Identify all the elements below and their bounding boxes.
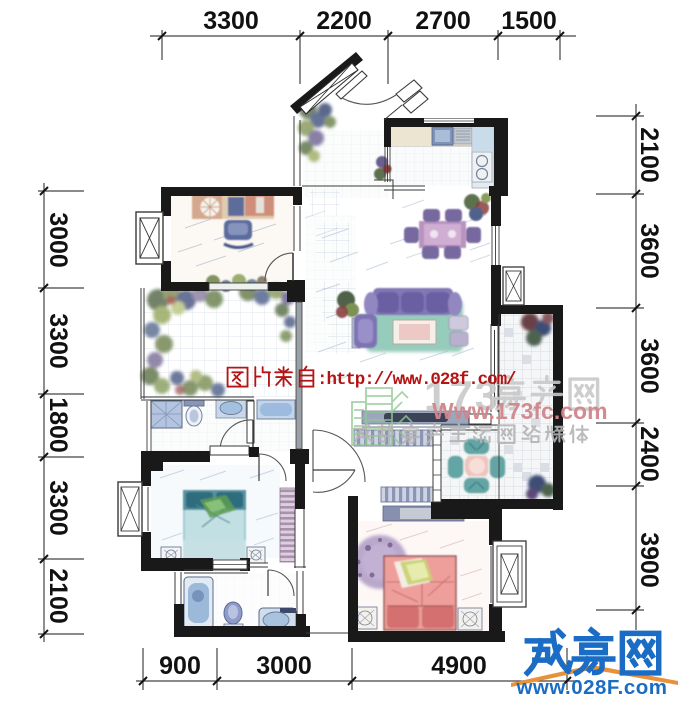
- svg-text:3300: 3300: [44, 313, 72, 369]
- svg-text:2100: 2100: [44, 568, 72, 624]
- svg-text:www.028F.com: www.028F.com: [515, 676, 667, 699]
- svg-text:1500: 1500: [501, 7, 557, 35]
- svg-text::http://www.028f.com/: :http://www.028f.com/: [317, 370, 516, 390]
- svg-text:2400: 2400: [635, 426, 663, 482]
- svg-text:1800: 1800: [44, 397, 72, 453]
- svg-text:Www.173fc.com: Www.173fc.com: [432, 398, 608, 424]
- svg-text:3600: 3600: [635, 338, 663, 394]
- svg-text:2200: 2200: [316, 7, 372, 35]
- svg-text:2100: 2100: [635, 127, 663, 183]
- svg-text:3000: 3000: [44, 212, 72, 268]
- svg-text:3900: 3900: [635, 532, 663, 588]
- svg-text:2700: 2700: [415, 7, 471, 35]
- svg-text:3300: 3300: [203, 7, 259, 35]
- svg-text:3600: 3600: [635, 223, 663, 279]
- svg-text:3000: 3000: [256, 652, 312, 680]
- svg-text:3300: 3300: [44, 480, 72, 536]
- svg-text:4900: 4900: [431, 652, 487, 680]
- svg-text:900: 900: [159, 652, 201, 680]
